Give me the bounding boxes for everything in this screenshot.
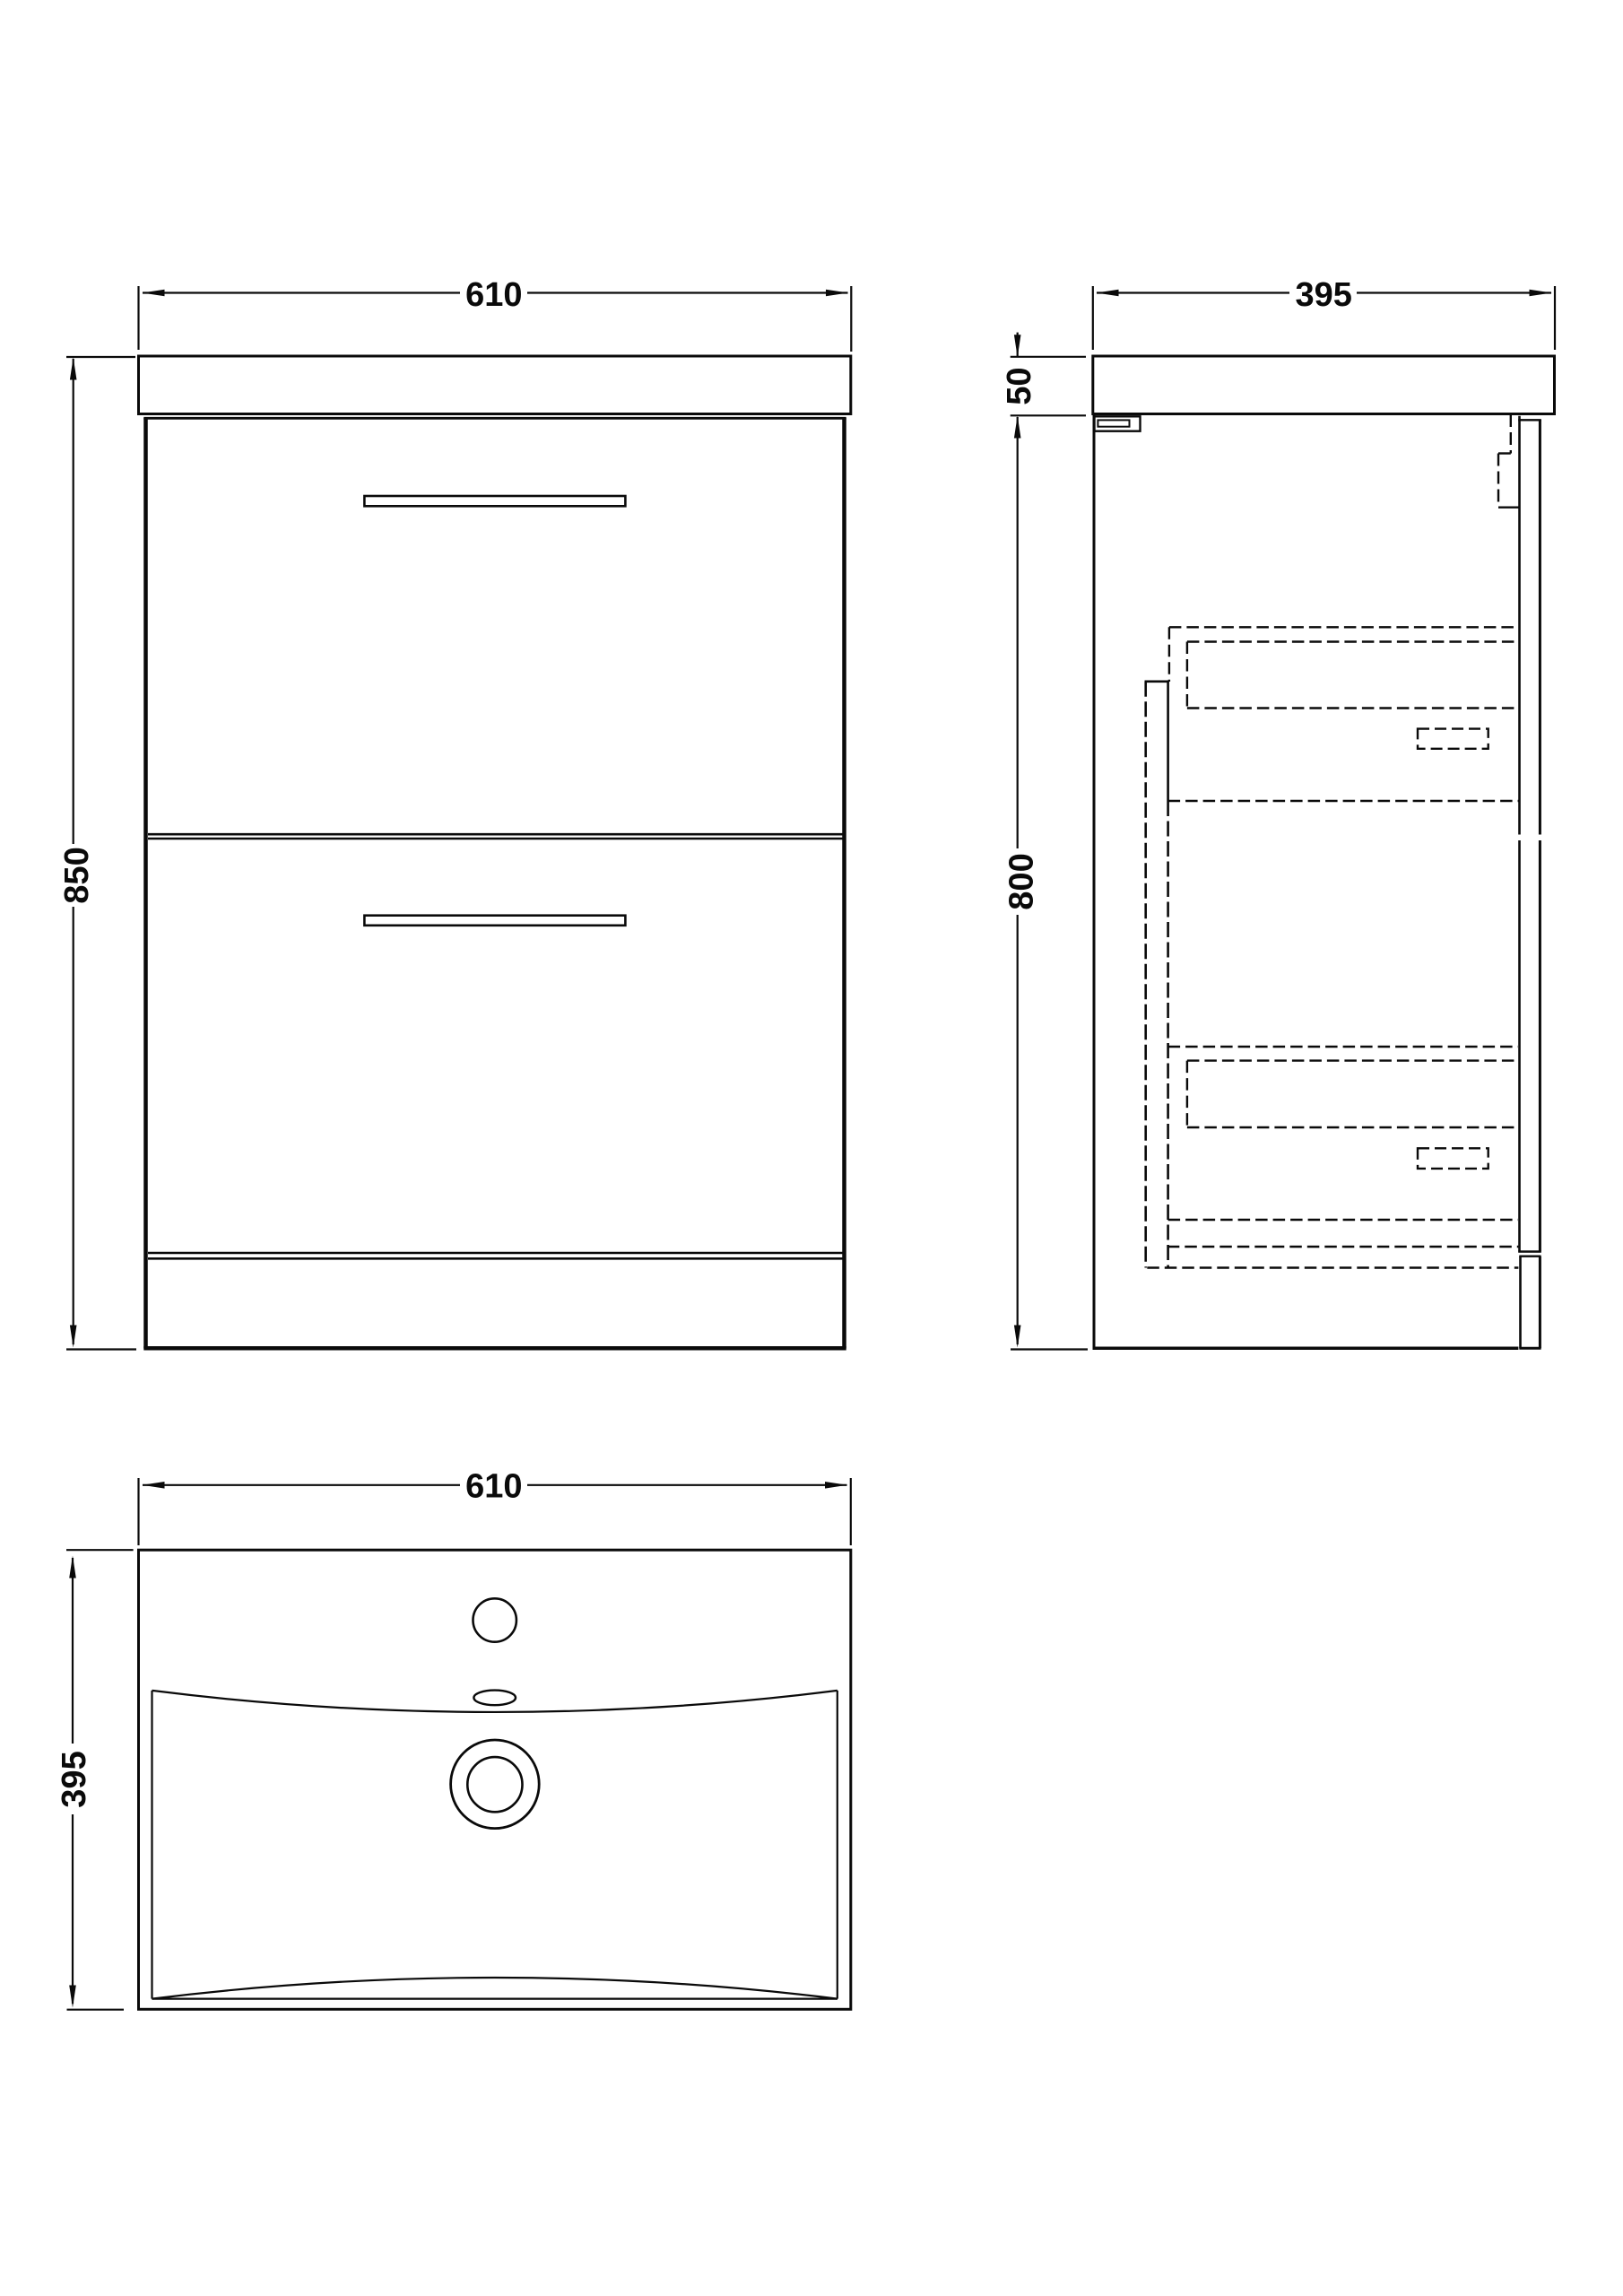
svg-text:395: 395: [1295, 276, 1351, 314]
svg-text:850: 850: [58, 847, 96, 903]
svg-text:50: 50: [1001, 367, 1038, 404]
svg-text:800: 800: [1002, 853, 1040, 909]
svg-text:395: 395: [56, 1751, 93, 1807]
svg-text:610: 610: [465, 1468, 522, 1506]
svg-text:610: 610: [465, 276, 522, 314]
